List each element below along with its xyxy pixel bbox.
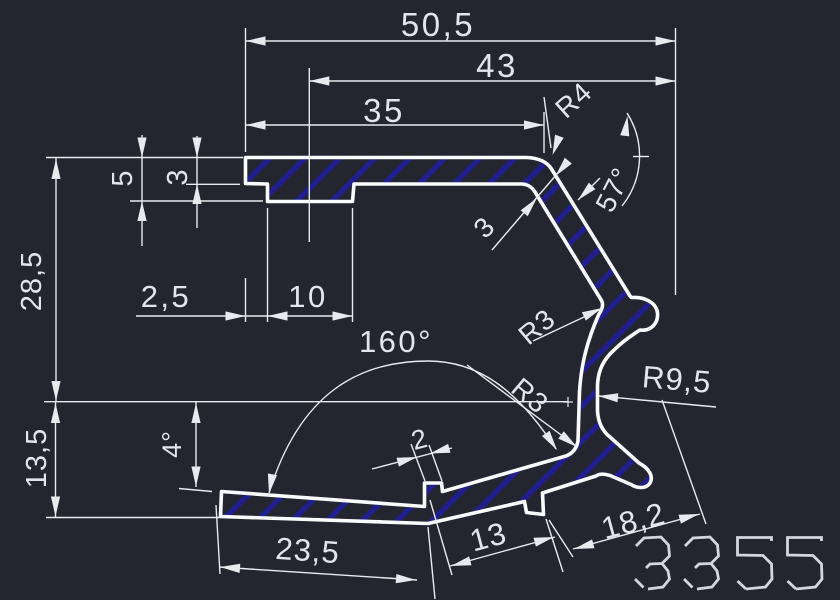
svg-text:35: 35 xyxy=(363,92,405,129)
svg-text:10: 10 xyxy=(288,279,327,314)
svg-text:3: 3 xyxy=(162,168,194,185)
svg-text:5: 5 xyxy=(107,169,139,186)
svg-text:2,5: 2,5 xyxy=(141,279,192,314)
svg-text:13,5: 13,5 xyxy=(21,428,53,488)
svg-text:160°: 160° xyxy=(359,324,433,359)
svg-text:4°: 4° xyxy=(157,430,187,458)
svg-text:23,5: 23,5 xyxy=(274,531,341,570)
svg-text:43: 43 xyxy=(476,47,518,84)
svg-text:R9,5: R9,5 xyxy=(641,359,713,400)
svg-text:28,5: 28,5 xyxy=(16,251,48,311)
svg-text:50,5: 50,5 xyxy=(401,6,475,43)
